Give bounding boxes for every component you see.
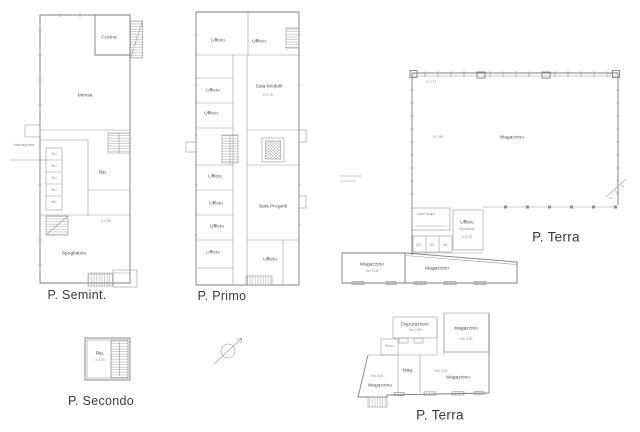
room-label-magazzino: Magazzino: [360, 261, 384, 267]
room-label-wc: WC: [51, 152, 57, 156]
room-label-depurazione: Depurazione: [401, 321, 429, 327]
drawing-canvas: Cucina Mensa Intercapedine WC WC WC WC W…: [0, 0, 640, 432]
room-label-wc: WC: [416, 243, 422, 247]
room-label-mensa: Mensa: [78, 92, 93, 98]
room-label-wc: WC: [51, 200, 57, 204]
room-label-ufficio: Ufficio: [211, 37, 225, 43]
room-label-ufficio: Ufficio: [208, 173, 222, 179]
room-label-magazzino: Magazzino: [454, 325, 478, 331]
room-label-ufficio: Ufficio: [206, 87, 220, 93]
plan-title-primo: P. Primo: [198, 289, 247, 303]
room-label-ufficio: Ufficio: [206, 249, 220, 255]
room-label-spedizioni: Spedizioni: [459, 227, 475, 231]
room-label-spogliatoio: Spogliatoio: [62, 250, 87, 256]
height-mark: Hm 3.00: [435, 369, 448, 373]
height-mark: Hm 2.55: [409, 328, 422, 332]
room-label-magazzino: Magazzino: [446, 374, 470, 380]
elevation-mark: ± 2.30: [95, 358, 104, 362]
room-label-wc: WC: [51, 176, 57, 180]
floor-plan-primo: [186, 12, 306, 285]
room-label-wc: WC: [51, 188, 57, 192]
room-label-ufficio: Ufficio: [252, 38, 266, 44]
floor-plan-semint: [10, 13, 143, 287]
height-mark: H 7.80: [433, 135, 443, 139]
room-label-sala-pompe: Sala Pompe: [417, 212, 436, 216]
height-mark: H 3.10: [462, 235, 472, 239]
room-label-ufficio: Ufficio: [210, 223, 224, 229]
north-arrow-icon: [214, 338, 242, 364]
height-mark: Hm 3.08: [366, 269, 379, 273]
elevation-mark: ± 1.98: [101, 219, 110, 223]
room-label-rip: Rip.: [96, 350, 105, 356]
room-label-pesa: Pesa: [385, 344, 393, 348]
room-label-ufficio: Ufficio: [263, 256, 277, 262]
room-label-rip: Rip.: [99, 169, 108, 175]
height-mark: H 7.77: [426, 80, 436, 84]
room-label-ufficio: Ufficio: [209, 200, 223, 206]
note-intercapedine: Intercapedine: [14, 143, 35, 147]
room-label-sala-modelli: Sala Modelli: [256, 83, 283, 89]
room-label-ufficio: Ufficio: [204, 110, 218, 116]
room-label-ufficio: Ufficio: [460, 219, 474, 225]
room-label-wc: WC: [443, 243, 449, 247]
room-label-wc: WC: [429, 243, 435, 247]
plan-title-secondo: P. Secondo: [68, 394, 134, 408]
height-mark: Hm 2.80: [460, 337, 473, 341]
floor-plan-secondo: [85, 338, 130, 380]
room-label-magazzino: Magazzino: [425, 265, 449, 271]
room-label-mag: Mag.: [402, 367, 413, 373]
height-mark: H 2.70: [263, 93, 273, 97]
height-mark: Hm 3.00: [371, 374, 384, 378]
room-label-sala-progetti: Sala Progetti: [259, 203, 287, 209]
room-label-cucina: Cucina: [101, 34, 116, 40]
plan-title-terra-big: P. Terra: [532, 230, 580, 245]
floor-plan-terra-big: [340, 71, 626, 285]
plan-linework: [0, 0, 640, 432]
room-label-wc: WC: [51, 164, 57, 168]
room-label-magazzino: Magazzino: [500, 134, 524, 140]
plan-title-terra-small: P. Terra: [416, 408, 464, 423]
plan-title-semint: P. Semint.: [47, 288, 106, 302]
room-label-magazzino: Magazzino: [368, 382, 392, 388]
